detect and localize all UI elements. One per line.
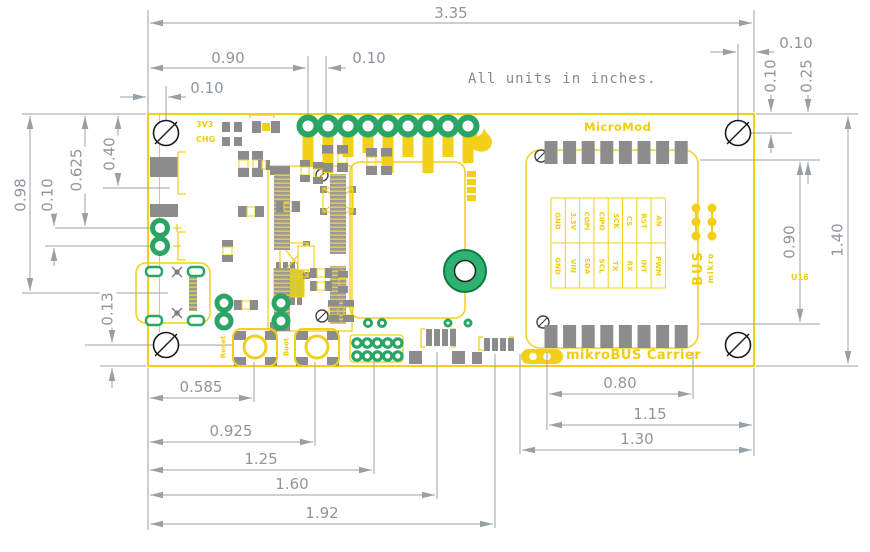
socket-pad: [656, 325, 669, 348]
socket-pad: [600, 141, 613, 164]
plated-hole: [274, 296, 288, 310]
silk-reset-label: Reset: [221, 336, 228, 358]
socket-pad: [619, 141, 632, 164]
socket-pad: [545, 141, 558, 164]
passive-pad: [337, 163, 348, 172]
mikrobus-logo-text: BUS mikro: [691, 238, 715, 298]
socket-pad: [619, 325, 632, 348]
silk-carrier-label: mikroBUS Carrier: [566, 349, 701, 362]
passive-pad: [325, 268, 332, 278]
passive-pad: [310, 281, 317, 291]
mikrobus-pin-label: COPI: [580, 198, 594, 243]
dim-usb-center: 0.98: [13, 176, 30, 213]
passive-pad: [343, 315, 354, 322]
plated-hole: [400, 118, 417, 135]
passive-pad: [381, 166, 392, 175]
passive-pad: [313, 177, 323, 184]
silk-boot-label: Boot: [284, 338, 291, 356]
header-pin: [394, 339, 402, 347]
header-pin: [363, 352, 371, 360]
plated-hole: [360, 118, 377, 135]
micromod-logo-icon: [521, 349, 563, 364]
mikrobus-pin-label: VIN: [565, 243, 579, 288]
mikrobus-pin-label: TX: [608, 243, 622, 288]
header-pin: [383, 339, 391, 347]
mikrobus-logo-mikro: mikro: [706, 238, 715, 298]
passive-pad: [266, 160, 270, 170]
socket-pad: [638, 325, 651, 348]
dim-socket-full: 1.30: [618, 431, 655, 448]
mikrobus-pin-label: PWM: [651, 243, 665, 288]
passive-pad: [322, 163, 333, 172]
dim-left-block: 0.90: [209, 50, 246, 67]
silk-micromod-label: MicroMod: [584, 122, 651, 134]
silk-chg-label: CHG: [196, 136, 215, 144]
passive-pad: [366, 166, 377, 175]
dim-header-x: 1.25: [242, 451, 279, 468]
connector-pad: [442, 329, 448, 346]
dim-overall-width: 3.35: [432, 5, 469, 22]
passive-pad: [338, 271, 348, 278]
mikrobus-pin-label: GND: [551, 243, 565, 288]
dim-conn1-x: 1.60: [273, 476, 310, 493]
header-pin: [394, 352, 402, 360]
socket-pad: [563, 325, 576, 348]
mikrobus-pin-label: SCK: [608, 198, 622, 243]
led-body: [262, 123, 270, 131]
dim-socket-span: 0.90: [782, 223, 799, 260]
dim-conn-line: 0.40: [102, 135, 119, 172]
connector-pad: [508, 338, 514, 351]
connector-pad: [492, 338, 498, 351]
drawing-shapes: [0, 0, 870, 552]
socket-pad: [675, 141, 688, 164]
mikrobus-logo-bus: BUS: [691, 238, 706, 298]
mikrobus-pin-label: RST: [637, 198, 651, 243]
dim-overall-height: 1.40: [830, 221, 847, 258]
passive-pad: [300, 175, 310, 182]
passive-pad: [343, 300, 354, 307]
mikrobus-pin-label: AN: [651, 198, 665, 243]
passive-pad: [255, 206, 264, 217]
trace: [423, 133, 434, 173]
connector-pad: [484, 338, 490, 351]
passive-pad: [381, 148, 392, 157]
mikrobus-pin-label: CIPO: [594, 198, 608, 243]
header-pin: [353, 352, 361, 360]
passive-pad: [276, 201, 284, 212]
pcb-dimension-drawing: All units in inches. 3.35 0.90 0.10 0.10…: [0, 0, 870, 552]
header-pin: [383, 352, 391, 360]
plated-hole: [340, 118, 357, 135]
dim-hole-pitch: 0.10: [350, 50, 387, 67]
mikrobus-pin-label: RX: [623, 243, 637, 288]
dim-right-hole-top: 0.10: [763, 57, 780, 94]
passive-pad: [338, 286, 348, 293]
passive-pad: [337, 145, 348, 154]
plated-hole: [320, 118, 337, 135]
socket-pad: [638, 141, 651, 164]
connector-pad: [450, 329, 456, 346]
plated-hole: [217, 314, 231, 328]
dim-batt-pitch: 0.10: [40, 176, 57, 213]
plated-hole: [420, 118, 437, 135]
passive-pad: [222, 240, 233, 247]
dim-left-hole: 0.10: [188, 80, 225, 97]
mikrobus-pin-label: GND: [551, 198, 565, 243]
plated-hole: [460, 118, 477, 135]
plated-hole: [217, 296, 231, 310]
header-pin: [373, 352, 381, 360]
header-pin: [363, 339, 371, 347]
mikrobus-pin-label: INT: [637, 243, 651, 288]
dim-batt-hole: 0.625: [69, 147, 86, 194]
units-note: All units in inches.: [468, 71, 657, 87]
passive-pad: [258, 160, 262, 170]
passive-pad: [310, 268, 317, 278]
dim-boot-x: 0.925: [208, 423, 255, 440]
passive-pad: [300, 160, 310, 167]
header-pin: [353, 339, 361, 347]
passive-pad: [238, 151, 249, 160]
socket-pad: [545, 325, 558, 348]
passive-pad: [238, 168, 249, 177]
socket-pad: [656, 141, 669, 164]
socket-pad: [582, 141, 595, 164]
standoff-hole: [444, 250, 486, 292]
plated-hole: [380, 118, 397, 135]
passive-pad: [328, 300, 339, 307]
socket-pad: [675, 325, 688, 348]
plated-hole: [445, 320, 451, 326]
passive-pad: [313, 162, 323, 169]
mikrobus-pin-label: CS: [623, 198, 637, 243]
socket-pad: [600, 325, 613, 348]
plated-hole: [153, 221, 168, 236]
dim-conn2-x: 1.92: [303, 505, 340, 522]
plated-hole: [300, 118, 317, 135]
mikrobus-pin-label: SDA: [580, 243, 594, 288]
passive-pad: [366, 148, 377, 157]
plated-hole: [379, 320, 386, 327]
dim-socket-edge: 1.15: [631, 406, 668, 423]
passive-pad: [322, 145, 333, 154]
silk-designator: U16: [791, 274, 809, 282]
plated-hole: [153, 239, 168, 254]
passive-pad: [252, 151, 263, 160]
plated-hole: [365, 320, 372, 327]
socket-pad: [563, 141, 576, 164]
passive-pad: [250, 300, 258, 310]
connector-pad: [426, 329, 432, 346]
passive-pad: [238, 206, 247, 217]
connector-pad: [500, 338, 506, 351]
dim-reset-x: 0.585: [178, 379, 225, 396]
dim-socket-pads: 0.80: [601, 375, 638, 392]
connector-pad: [434, 329, 440, 346]
passive-pad: [292, 201, 300, 212]
header-pin: [373, 339, 381, 347]
plated-hole: [274, 314, 288, 328]
passive-pad: [328, 315, 339, 322]
mikrobus-pin-label: SCL: [594, 243, 608, 288]
dim-right-hole: 0.10: [777, 35, 814, 52]
dim-right-pads-top: 0.25: [799, 57, 816, 94]
socket-pad: [582, 325, 595, 348]
mikrobus-pin-label: 3.3V: [565, 198, 579, 243]
plated-hole: [440, 118, 457, 135]
passive-pad: [325, 281, 332, 291]
dim-bottom-hole: 0.13: [100, 290, 117, 327]
plated-hole: [465, 320, 471, 326]
silk-3v3-label: 3V3: [196, 121, 213, 129]
passive-pad: [222, 255, 233, 262]
passive-pad: [234, 300, 242, 310]
